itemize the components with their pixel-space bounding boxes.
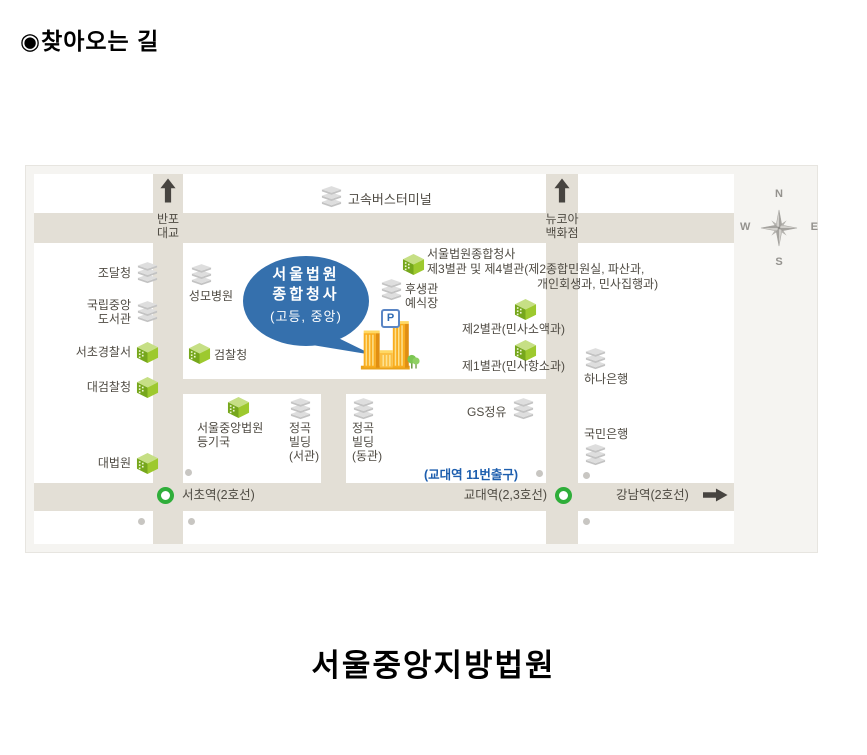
bullet-icon: ◉ <box>20 28 41 54</box>
gs-oil-label: GS정유 <box>467 405 506 419</box>
corner-dot <box>536 470 543 477</box>
annex2-label: 제2별관(민사소액과) <box>462 322 565 336</box>
corner-dot <box>583 518 590 525</box>
landmark-supreme-court: 대법원 <box>34 452 164 475</box>
landmark-seocho-police: 서초경찰서 <box>34 341 164 364</box>
hana-bank-building-icon <box>584 348 607 371</box>
page-title: ◉찾아오는 길 <box>20 22 159 56</box>
gs-oil-building-icon <box>512 398 535 421</box>
prosecutors-label: 검찰청 <box>214 348 247 362</box>
block-bottom-middle <box>183 511 546 544</box>
gyodae-station-label: 교대역(2,3호선) <box>429 488 547 503</box>
block-top-right <box>578 174 734 213</box>
footer-title: 서울중앙지방법원 <box>0 640 867 685</box>
annex34-label: 서울법원종합청사 제3별관 및 제4별관(제2종합민원실, 파산과, 개인회생과… <box>427 247 658 292</box>
kookmin-bank-label: 국민은행 <box>584 427 628 441</box>
annex2-building-icon <box>514 298 537 321</box>
newcore-arrow-icon <box>554 178 570 203</box>
banpo-bridge-label: 반포 대교 <box>143 212 193 240</box>
corner-dot <box>188 518 195 525</box>
corner-dot <box>583 472 590 479</box>
welfare-hall-building-icon <box>380 279 403 302</box>
jeonggok-east-label: 정곡 빌딩 (동관) <box>352 421 382 463</box>
annex34-building-icon <box>402 253 425 276</box>
compass-south-label: S <box>775 256 782 268</box>
access-map: 반포 대교 고속버스터미널 뉴코아 백화점 N S W E 조달청 국립중앙도서… <box>25 165 818 553</box>
gray-building-icon <box>136 262 159 285</box>
parking-icon: P <box>381 309 400 328</box>
green-building-icon <box>136 452 159 475</box>
block-top-left <box>34 174 153 213</box>
block-bottom-right <box>578 511 734 544</box>
corner-dot <box>138 518 145 525</box>
newcore-dept-label: 뉴코아 백화점 <box>534 212 590 240</box>
green-building-icon <box>136 376 159 399</box>
kookmin-bank-building-icon <box>584 444 607 467</box>
bus-terminal-building-icon <box>320 186 343 209</box>
registry-label: 서울중앙법원 등기국 <box>197 421 263 449</box>
gray-building-icon <box>136 301 159 324</box>
jeonggok-east-building-icon <box>352 398 375 421</box>
corner-dot <box>185 469 192 476</box>
compass-north-label: N <box>775 188 783 200</box>
compass-star-icon <box>760 209 798 247</box>
registry-building-icon <box>227 396 250 419</box>
jeonggok-west-label: 정곡 빌딩 (서관) <box>289 421 319 463</box>
gyodae-exit-note: (교대역 11번출구) <box>424 464 518 483</box>
block-bottom-left <box>34 511 153 544</box>
jeonggok-west-building-icon <box>289 398 312 421</box>
compass-west-label: W <box>740 221 750 233</box>
bus-terminal-label: 고속버스터미널 <box>348 192 432 207</box>
seocho-station-icon <box>157 487 174 504</box>
compass-east-label: E <box>811 221 818 233</box>
court-balloon-text: 서울법원 종합청사 (고등, 중앙) <box>241 265 371 325</box>
green-building-icon <box>136 341 159 364</box>
banpo-bridge-arrow-icon <box>160 178 176 203</box>
hospital-building-icon <box>190 264 213 287</box>
gyodae-station-icon <box>555 487 572 504</box>
seocho-station-label: 서초역(2호선) <box>182 488 255 503</box>
landmark-national-library: 국립중앙도서관 <box>34 298 164 326</box>
landmark-supreme-prosecutors: 대검찰청 <box>34 376 164 399</box>
compass-rose: N S W E <box>740 188 818 268</box>
prosecutors-building-icon <box>188 342 211 365</box>
landmark-procurement: 조달청 <box>34 262 164 285</box>
annex1-label: 제1별관(민사항소과) <box>462 359 565 373</box>
gangnam-direction-arrow-icon <box>703 488 728 502</box>
hana-bank-label: 하나은행 <box>584 372 628 386</box>
gangnam-station-label: 강남역(2호선) <box>616 488 689 503</box>
